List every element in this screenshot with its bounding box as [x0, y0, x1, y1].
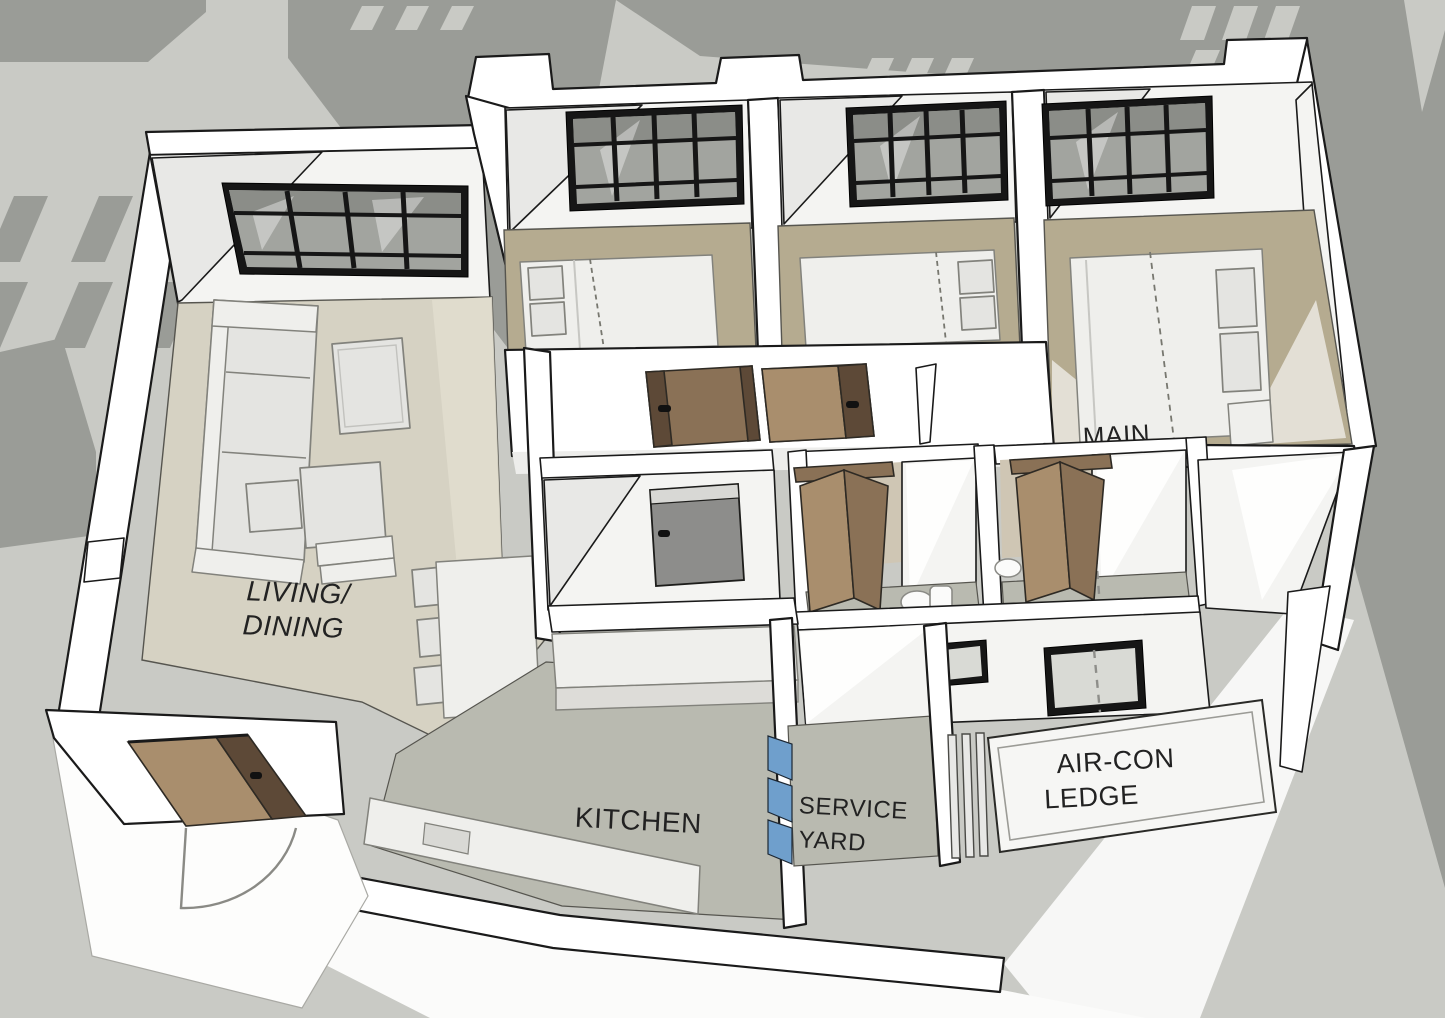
main-bedroom: MAIN	[1042, 82, 1352, 452]
louvre-window	[768, 736, 792, 864]
bathroom-1	[788, 444, 980, 626]
sofa-armrest-top	[212, 300, 318, 332]
floor-plan-3d: MAIN	[0, 0, 1445, 1018]
living-window	[222, 183, 468, 277]
door-handle	[250, 772, 262, 779]
living-dining-label-line2: DINING	[242, 609, 345, 644]
pillow	[1220, 332, 1261, 392]
pillow	[528, 266, 564, 300]
sofa	[192, 300, 318, 584]
pillow	[530, 302, 566, 336]
door-handle	[658, 530, 670, 537]
bedroom-2	[466, 96, 756, 355]
aircon-slats	[948, 733, 988, 858]
bedroom3-door	[762, 364, 874, 442]
bedroom3-window	[846, 101, 1008, 207]
bedroom3-bed	[800, 250, 1000, 348]
door-handle	[658, 405, 671, 412]
aircon-ledge-label-line2: LEDGE	[1044, 780, 1140, 815]
bath-south-wall	[796, 596, 1210, 728]
bath2-small-window	[1044, 640, 1146, 716]
pillow	[958, 260, 994, 294]
living-dining-label-line1: LIVING/	[246, 575, 353, 610]
store-door	[650, 484, 744, 586]
floor-plan-page: MAIN	[0, 0, 1445, 1018]
bedroom2-door	[646, 366, 760, 447]
bedroom2-window	[566, 105, 744, 211]
bedroom-3	[778, 92, 1020, 352]
bath2-toilet	[995, 559, 1021, 577]
nightstand	[1228, 400, 1273, 446]
main-window	[1042, 96, 1214, 206]
coffee-table	[332, 338, 410, 434]
kitchen-counter-top	[552, 626, 798, 710]
bath1-bifold-door	[794, 462, 894, 612]
service-yard-label-line1: SERVICE	[798, 792, 908, 825]
bathroom-2	[994, 437, 1216, 614]
aircon-ledge-label-line1: AIR-CON	[1056, 743, 1176, 779]
living-left-wall-notch	[84, 538, 124, 582]
pillow	[960, 296, 996, 330]
pillow	[1216, 268, 1257, 328]
service-yard-label-line2: YARD	[798, 826, 867, 856]
side-table	[246, 480, 302, 532]
bedroom2-bed	[520, 255, 718, 352]
door-handle	[846, 401, 859, 408]
